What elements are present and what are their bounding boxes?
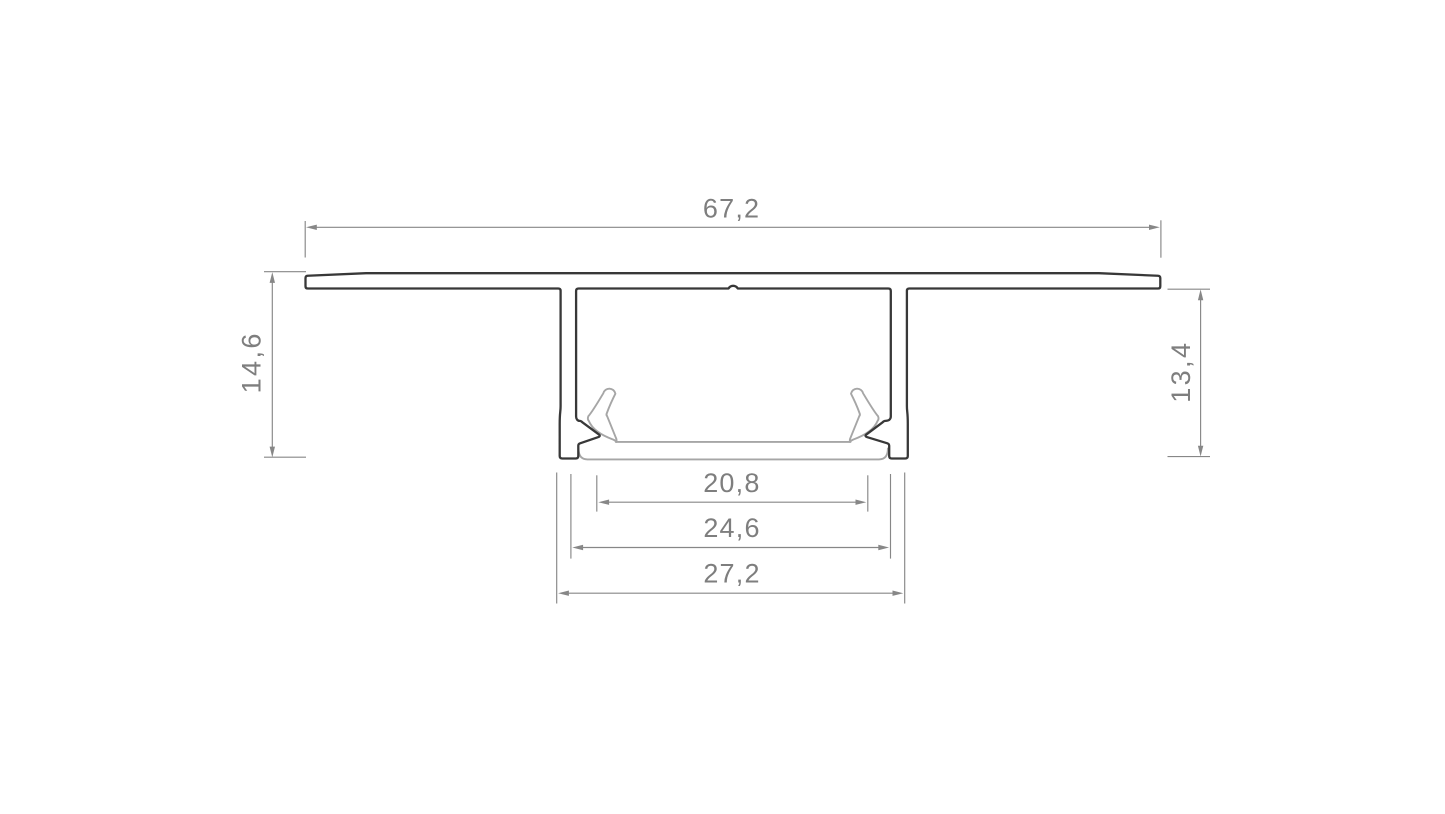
svg-text:13,4: 13,4 <box>1166 341 1196 403</box>
svg-text:27,2: 27,2 <box>703 559 760 589</box>
svg-text:20,8: 20,8 <box>703 468 760 498</box>
svg-text:24,6: 24,6 <box>703 513 760 543</box>
svg-text:67,2: 67,2 <box>703 194 760 224</box>
svg-text:14,6: 14,6 <box>237 331 267 393</box>
